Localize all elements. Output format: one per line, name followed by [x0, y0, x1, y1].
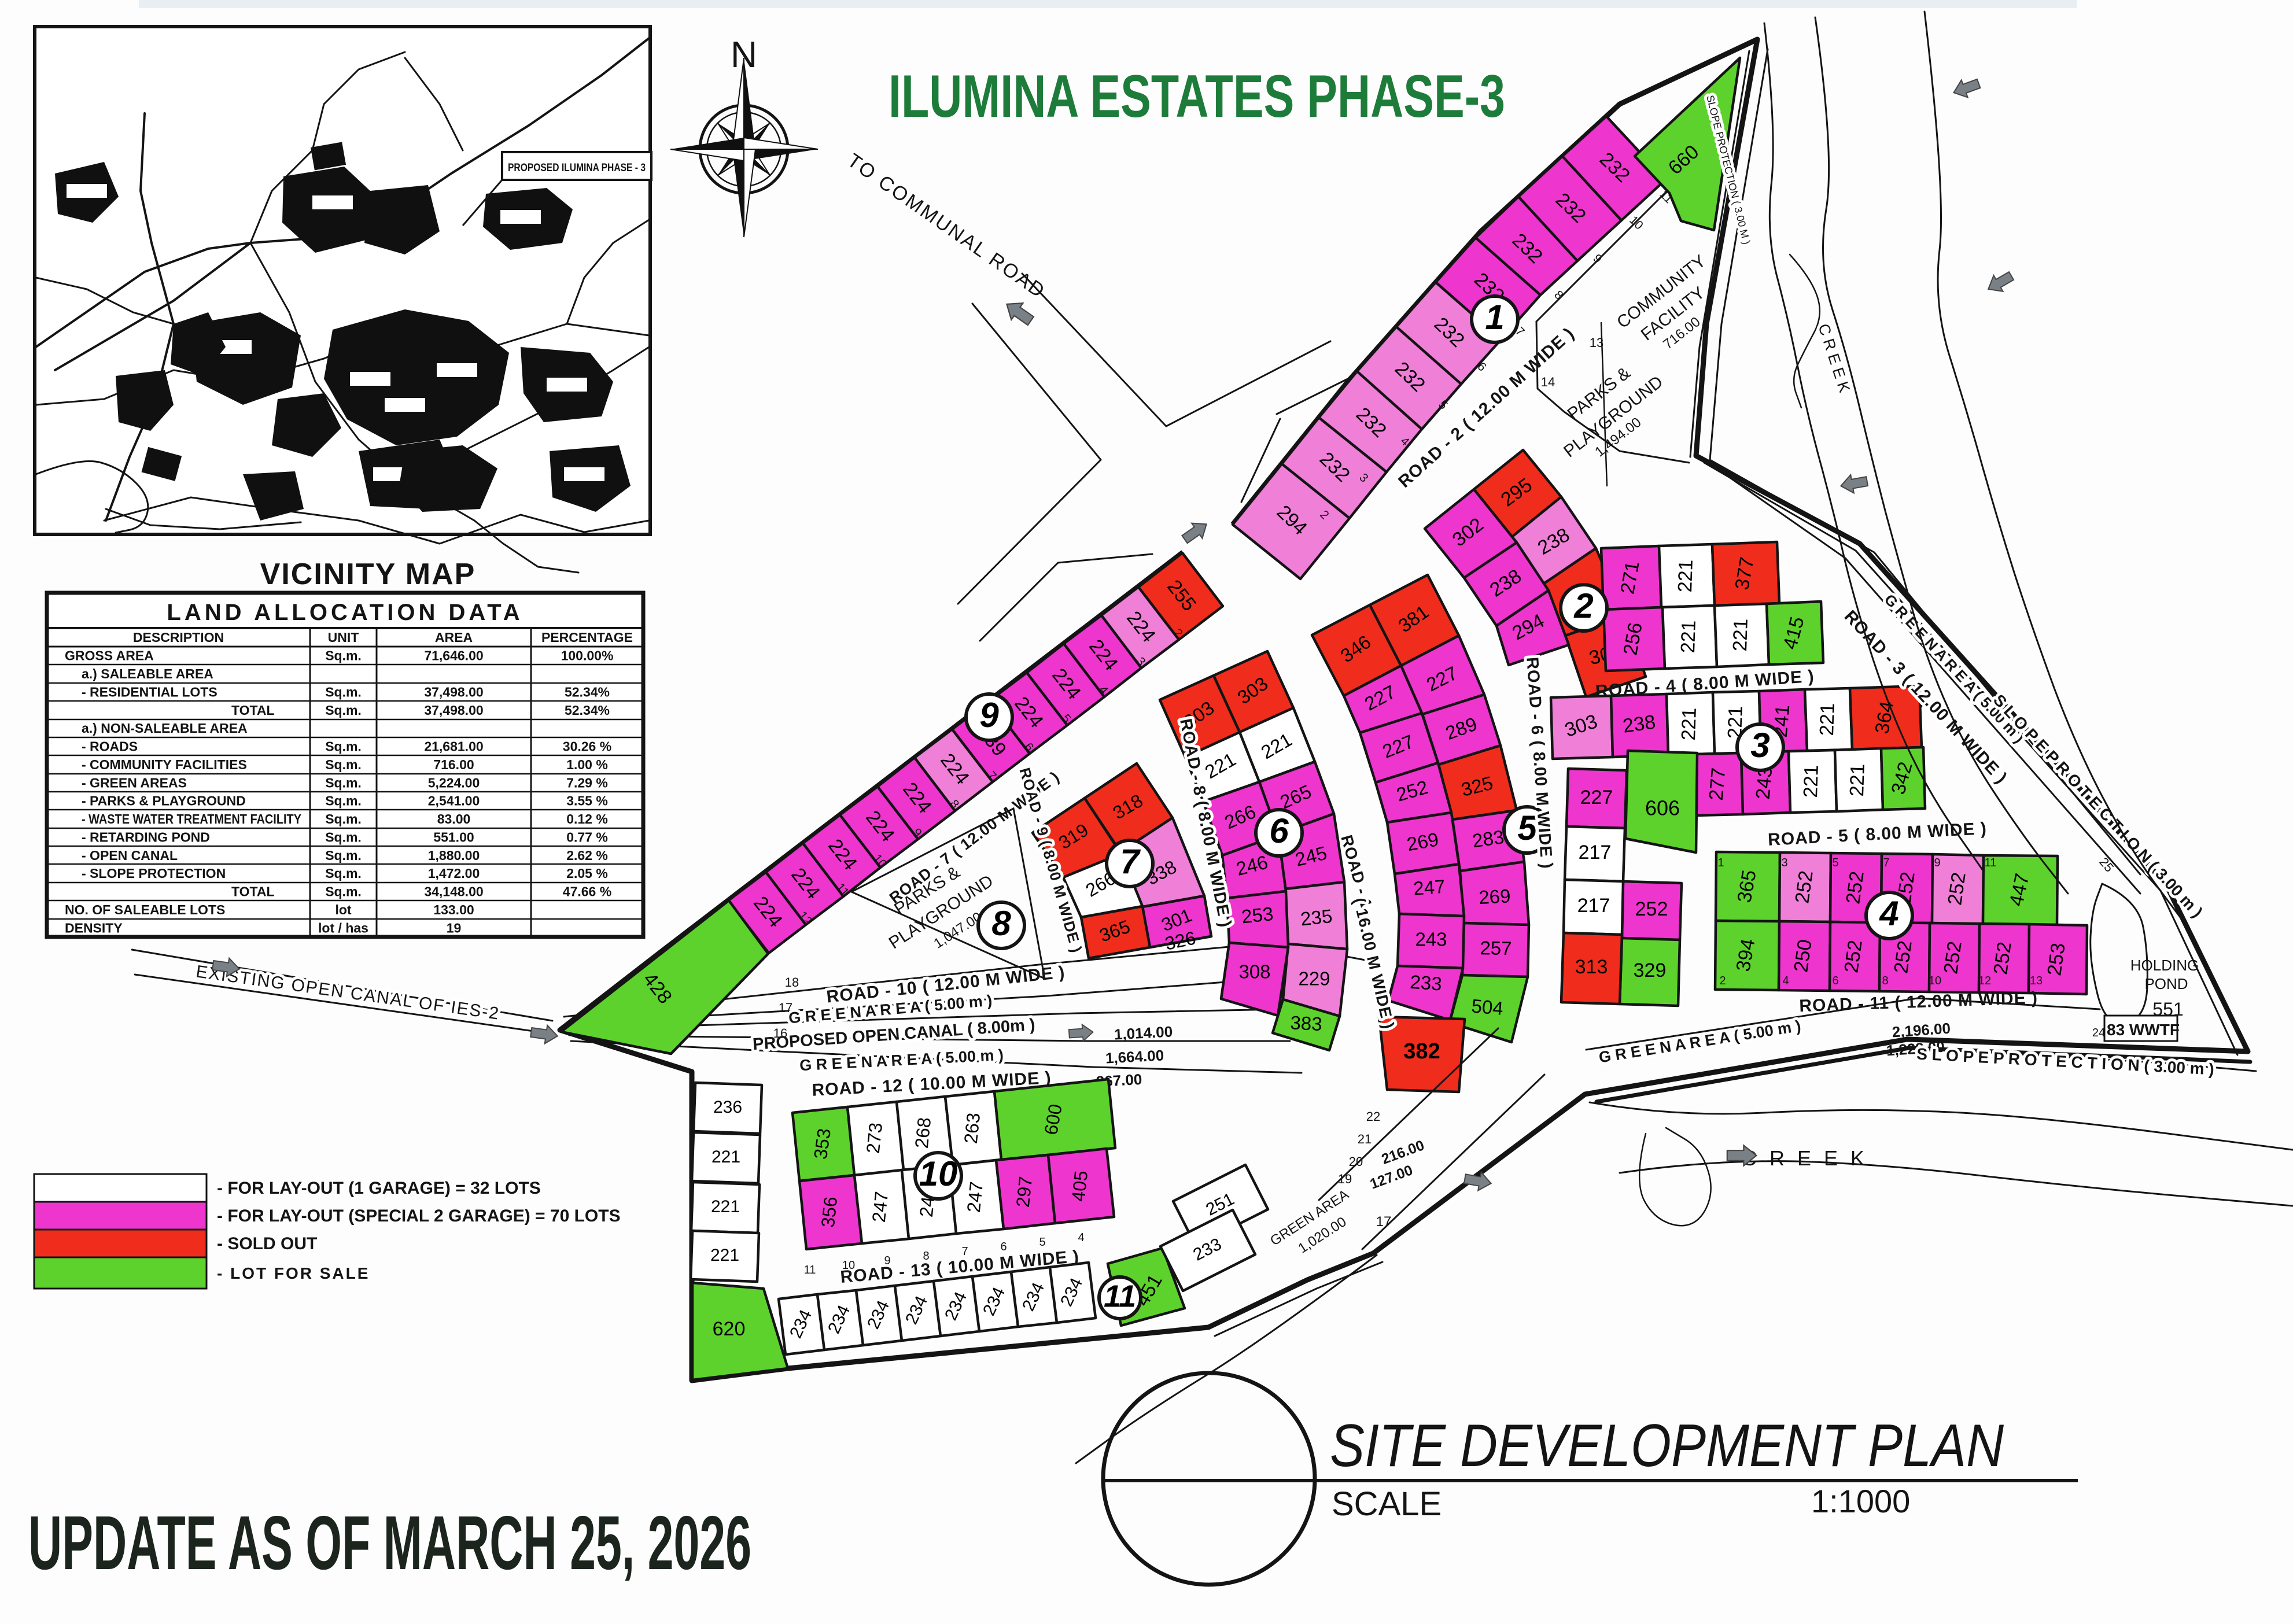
svg-text:Sq.m.: Sq.m. — [325, 739, 362, 754]
svg-text:297: 297 — [1012, 1175, 1036, 1208]
svg-text:Sq.m.: Sq.m. — [325, 793, 362, 809]
svg-text:233: 233 — [1409, 971, 1443, 995]
svg-text:8: 8 — [1882, 975, 1888, 987]
svg-text:83 WWTF: 83 WWTF — [2107, 1021, 2180, 1039]
svg-text:551.00: 551.00 — [433, 829, 474, 844]
svg-text:SITE DEVELOPMENT PLAN: SITE DEVELOPMENT PLAN — [1330, 1412, 2004, 1479]
svg-text:283: 283 — [1471, 826, 1506, 851]
svg-text:17: 17 — [1376, 1214, 1392, 1230]
svg-text:252: 252 — [1989, 940, 2016, 976]
svg-text:N: N — [731, 34, 757, 75]
svg-text:Sq.m.: Sq.m. — [325, 848, 362, 863]
svg-text:POND: POND — [2144, 975, 2188, 992]
svg-text:504: 504 — [1470, 995, 1504, 1019]
svg-text:329: 329 — [1634, 959, 1667, 981]
svg-text:37,498.00: 37,498.00 — [424, 703, 483, 718]
svg-text:AREA: AREA — [435, 630, 473, 645]
svg-text:227: 227 — [1580, 787, 1613, 809]
svg-text:221: 221 — [710, 1246, 739, 1265]
svg-text:221: 221 — [711, 1197, 740, 1216]
svg-text:52.34%: 52.34% — [565, 703, 610, 718]
svg-text:11: 11 — [1104, 1279, 1136, 1313]
svg-text:LAND ALLOCATION DATA: LAND ALLOCATION DATA — [167, 600, 523, 625]
svg-text:- RETARDING POND: - RETARDING POND — [82, 829, 210, 844]
svg-text:lot: lot — [335, 902, 351, 917]
svg-text:1: 1 — [1485, 298, 1504, 337]
svg-text:Sq.m.: Sq.m. — [325, 811, 362, 826]
svg-text:C R E E K: C R E E K — [1742, 1146, 1868, 1170]
svg-text:20: 20 — [1349, 1154, 1363, 1169]
svg-text:a.) SALEABLE AREA: a.) SALEABLE AREA — [82, 666, 213, 681]
svg-text:382: 382 — [1403, 1039, 1440, 1064]
svg-text:- FOR LAY-OUT (SPECIAL 2 GARAG: - FOR LAY-OUT (SPECIAL 2 GARAGE) = 70 LO… — [217, 1206, 621, 1226]
svg-text:5: 5 — [1039, 1236, 1045, 1249]
svg-text:238: 238 — [1621, 711, 1657, 737]
svg-text:252: 252 — [1840, 939, 1867, 974]
svg-text:7: 7 — [961, 1245, 968, 1258]
svg-text:221: 221 — [1729, 618, 1752, 652]
svg-text:SCALE: SCALE — [1332, 1485, 1442, 1523]
svg-text:- COMMUNITY FACILITIES: - COMMUNITY FACILITIES — [82, 757, 247, 772]
svg-text:252: 252 — [1791, 869, 1818, 905]
svg-text:Sq.m.: Sq.m. — [325, 684, 362, 699]
svg-text:247: 247 — [868, 1190, 892, 1223]
svg-text:6: 6 — [1832, 975, 1838, 987]
svg-text:4: 4 — [1078, 1231, 1084, 1244]
svg-text:Sq.m.: Sq.m. — [325, 866, 362, 881]
svg-text:19: 19 — [1338, 1172, 1352, 1186]
svg-text:Sq.m.: Sq.m. — [325, 703, 362, 718]
svg-text:133.00: 133.00 — [433, 902, 474, 917]
svg-text:- ROADS: - ROADS — [82, 739, 138, 754]
svg-text:GROSS AREA: GROSS AREA — [65, 648, 154, 663]
svg-text:- PARKS & PLAYGROUND: - PARKS & PLAYGROUND — [82, 793, 246, 809]
svg-text:2.62 %: 2.62 % — [566, 848, 608, 863]
svg-text:405: 405 — [1068, 1169, 1092, 1202]
svg-text:DENSITY: DENSITY — [65, 920, 123, 935]
svg-text:100.00%: 100.00% — [561, 648, 614, 663]
svg-text:NO. OF SALEABLE LOTS: NO. OF SALEABLE LOTS — [65, 902, 225, 917]
svg-text:8: 8 — [923, 1250, 929, 1263]
svg-text:83.00: 83.00 — [437, 811, 471, 826]
svg-text:217: 217 — [1577, 895, 1610, 917]
svg-text:13: 13 — [1590, 335, 1603, 350]
svg-text:30.26 %: 30.26 % — [563, 739, 611, 754]
svg-text:257: 257 — [1480, 937, 1512, 959]
svg-text:356: 356 — [817, 1195, 841, 1228]
svg-text:1,880.00: 1,880.00 — [428, 848, 480, 863]
svg-text:HOLDING: HOLDING — [2130, 957, 2199, 974]
svg-text:269: 269 — [1478, 885, 1511, 908]
svg-text:lot / has: lot / has — [318, 920, 368, 935]
svg-text:620: 620 — [713, 1318, 746, 1340]
svg-text:252: 252 — [1944, 871, 1970, 906]
svg-text:247: 247 — [1413, 876, 1446, 899]
svg-text:10: 10 — [1929, 975, 1941, 987]
svg-text:- LOT FOR SALE: - LOT FOR SALE — [217, 1264, 370, 1282]
svg-text:34,148.00: 34,148.00 — [424, 884, 483, 899]
svg-text:221: 221 — [1846, 763, 1869, 797]
svg-text:5,224.00: 5,224.00 — [428, 775, 480, 790]
svg-text:7: 7 — [1120, 842, 1141, 881]
svg-text:0.77 %: 0.77 % — [566, 829, 608, 844]
svg-text:52.34%: 52.34% — [565, 684, 610, 699]
svg-text:18: 18 — [785, 975, 799, 990]
svg-text:- OPEN CANAL: - OPEN CANAL — [82, 848, 178, 863]
svg-text:221: 221 — [1677, 620, 1700, 654]
svg-text:8: 8 — [991, 904, 1011, 943]
svg-text:Sq.m.: Sq.m. — [325, 775, 362, 790]
svg-text:252: 252 — [1842, 870, 1868, 905]
svg-text:5: 5 — [1832, 857, 1838, 869]
svg-text:1: 1 — [1717, 857, 1724, 869]
svg-text:716.00: 716.00 — [433, 757, 474, 772]
svg-text:221: 221 — [1678, 707, 1701, 741]
svg-text:Sq.m.: Sq.m. — [325, 829, 362, 844]
svg-text:TOTAL: TOTAL — [231, 884, 275, 899]
svg-text:10: 10 — [842, 1259, 855, 1272]
svg-text:9: 9 — [1934, 857, 1940, 869]
svg-text:3: 3 — [1781, 857, 1787, 869]
svg-text:263: 263 — [960, 1112, 984, 1145]
svg-text:UNIT: UNIT — [328, 630, 359, 645]
svg-text:6: 6 — [1000, 1241, 1007, 1253]
svg-text:217: 217 — [1579, 841, 1612, 863]
svg-text:247: 247 — [963, 1180, 987, 1213]
svg-text:2: 2 — [1719, 975, 1726, 987]
svg-text:236: 236 — [713, 1098, 742, 1117]
svg-text:383: 383 — [1290, 1012, 1323, 1035]
svg-text:221: 221 — [1816, 703, 1839, 736]
svg-text:VICINITY MAP: VICINITY MAP — [260, 558, 476, 591]
svg-text:19: 19 — [447, 920, 462, 935]
svg-text:253: 253 — [2043, 942, 2070, 977]
svg-text:1,014.00: 1,014.00 — [1114, 1023, 1173, 1043]
svg-text:10: 10 — [919, 1154, 958, 1193]
svg-text:313: 313 — [1575, 956, 1608, 978]
svg-text:- SLOPE PROTECTION: - SLOPE PROTECTION — [82, 866, 226, 881]
svg-text:250: 250 — [1790, 938, 1816, 973]
svg-text:11: 11 — [1985, 857, 1997, 869]
svg-text:ILUMINA ESTATES PHASE-3: ILUMINA ESTATES PHASE-3 — [889, 63, 1505, 130]
svg-text:DESCRIPTION: DESCRIPTION — [133, 630, 224, 645]
svg-text:273: 273 — [862, 1121, 886, 1154]
svg-text:1,664.00: 1,664.00 — [1105, 1046, 1164, 1066]
svg-text:PERCENTAGE: PERCENTAGE — [541, 630, 633, 645]
svg-text:14: 14 — [1541, 375, 1555, 389]
svg-text:235: 235 — [1299, 905, 1333, 930]
svg-text:- WASTE WATER TREATMENT FACILI: - WASTE WATER TREATMENT FACILITY — [82, 811, 301, 826]
svg-text:- SOLD OUT: - SOLD OUT — [217, 1234, 317, 1253]
svg-text:221: 221 — [1674, 559, 1697, 593]
svg-text:Sq.m.: Sq.m. — [325, 884, 362, 899]
svg-text:- RESIDENTIAL LOTS: - RESIDENTIAL LOTS — [82, 684, 217, 699]
svg-text:1:1000: 1:1000 — [1811, 1483, 1910, 1519]
svg-text:9: 9 — [884, 1254, 890, 1267]
svg-text:252: 252 — [1890, 939, 1916, 975]
svg-text:16: 16 — [773, 1026, 787, 1040]
svg-text:6: 6 — [1269, 811, 1289, 850]
svg-text:- GREEN AREAS: - GREEN AREAS — [82, 775, 187, 790]
svg-text:21,681.00: 21,681.00 — [424, 739, 483, 754]
svg-text:TOTAL: TOTAL — [231, 703, 275, 718]
svg-text:7: 7 — [1883, 857, 1889, 869]
svg-text:1.00 %: 1.00 % — [566, 757, 608, 772]
svg-text:221: 221 — [1800, 765, 1823, 798]
svg-text:17: 17 — [779, 1001, 792, 1015]
svg-text:UPDATE AS OF MARCH 25, 2026: UPDATE AS OF MARCH 25, 2026 — [28, 1500, 751, 1585]
svg-text:268: 268 — [911, 1116, 935, 1149]
svg-text:243: 243 — [1415, 929, 1447, 950]
svg-text:253: 253 — [1240, 903, 1274, 928]
svg-text:2,541.00: 2,541.00 — [428, 793, 480, 809]
svg-text:a.) NON-SALEABLE AREA: a.) NON-SALEABLE AREA — [82, 721, 248, 736]
svg-text:2.05 %: 2.05 % — [566, 866, 608, 881]
svg-text:229: 229 — [1298, 968, 1330, 990]
svg-text:4: 4 — [1879, 894, 1898, 933]
svg-text:11: 11 — [804, 1264, 816, 1276]
svg-text:353: 353 — [810, 1127, 835, 1161]
svg-text:47.66 %: 47.66 % — [563, 884, 611, 899]
svg-text:252: 252 — [1635, 898, 1668, 920]
svg-text:12: 12 — [1978, 975, 1991, 987]
svg-text:Sq.m.: Sq.m. — [325, 757, 362, 772]
svg-text:4: 4 — [1782, 975, 1789, 987]
svg-text:7.29 %: 7.29 % — [566, 775, 608, 790]
svg-text:3: 3 — [1750, 726, 1769, 765]
svg-text:37,498.00: 37,498.00 — [424, 684, 483, 699]
svg-text:221: 221 — [712, 1147, 740, 1167]
svg-text:71,646.00: 71,646.00 — [424, 648, 483, 663]
svg-text:3.55 %: 3.55 % — [566, 793, 608, 809]
svg-text:9: 9 — [979, 696, 999, 735]
svg-text:- FOR LAY-OUT (1 GARAGE) = 32: - FOR LAY-OUT (1 GARAGE) = 32 LOTS — [217, 1179, 541, 1198]
svg-text:1,472.00: 1,472.00 — [428, 866, 480, 881]
svg-text:22: 22 — [1366, 1109, 1380, 1124]
svg-text:252: 252 — [1940, 940, 1966, 975]
svg-text:2: 2 — [1573, 586, 1593, 625]
svg-text:308: 308 — [1238, 961, 1270, 983]
svg-text:0.12 %: 0.12 % — [566, 811, 608, 826]
svg-text:24: 24 — [2092, 1027, 2105, 1039]
svg-text:277: 277 — [1705, 767, 1730, 802]
svg-text:13: 13 — [2030, 975, 2043, 987]
svg-text:606: 606 — [1645, 796, 1680, 820]
svg-text:21: 21 — [1358, 1132, 1372, 1146]
svg-text:Sq.m.: Sq.m. — [325, 648, 362, 663]
svg-text:PROPOSED ILUMINA PHASE - 3: PROPOSED ILUMINA PHASE - 3 — [508, 161, 646, 174]
